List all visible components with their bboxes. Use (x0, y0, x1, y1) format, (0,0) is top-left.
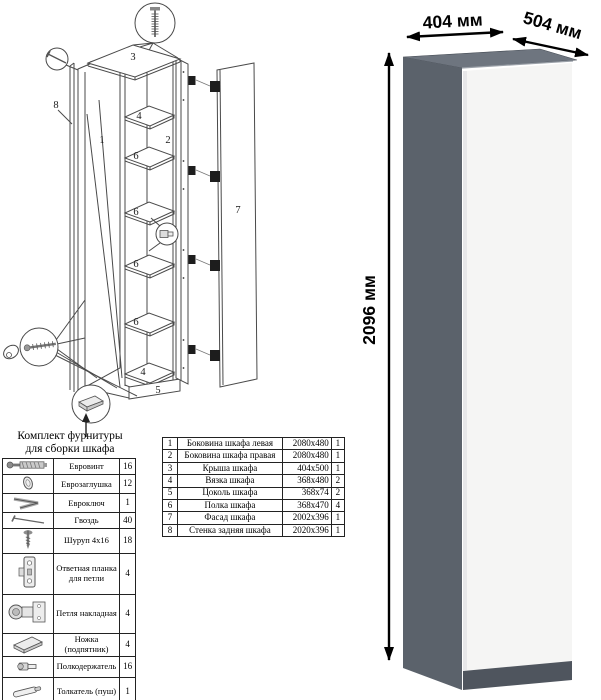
parts-row: 8 Стенка задняя шкафа 2020x396 1 (163, 524, 345, 536)
part-num: 4 (163, 475, 178, 487)
hardware-kit-title-line2: для сборки шкафа (0, 443, 140, 456)
hardware-qty: 16 (120, 459, 136, 475)
hardware-icon-cell (3, 459, 54, 475)
hardware-icon-cell (3, 633, 54, 656)
cabinet-side-face (403, 57, 462, 690)
hardware-row: Евровинт 16 (3, 459, 136, 475)
part-size: 2080x480 (282, 438, 331, 450)
euro-screw-icon (6, 459, 50, 471)
hardware-row: Толкатель (пуш) 1 (3, 677, 136, 700)
hardware-row: Шуруп 4x16 18 (3, 529, 136, 553)
part-num: 8 (163, 524, 178, 536)
part-name: Фасад шкафа (178, 512, 283, 524)
label-right-side: 2 (165, 135, 170, 146)
part-qty: 2 (331, 487, 344, 499)
shelf-pin-callout (156, 223, 178, 245)
cabinet-door-face (463, 63, 572, 671)
label-top-panel: 3 (130, 52, 135, 63)
hardware-name: Ножка (подпятник) (53, 633, 120, 656)
label-plinth: 5 (155, 385, 160, 396)
hardware-icon-cell (3, 553, 54, 594)
part-name: Боковина шкафа левая (178, 438, 283, 450)
hardware-qty: 4 (120, 553, 136, 594)
hardware-icon-cell (3, 677, 54, 700)
part-name: Стенка задняя шкафа (178, 524, 283, 536)
foot-icon (10, 634, 46, 654)
cabinet-render (403, 49, 577, 690)
part-size: 368x470 (282, 499, 331, 511)
width-label: 404 мм (422, 9, 483, 32)
part-num: 6 (163, 499, 178, 511)
width-arrow (407, 32, 503, 37)
hardware-row: Еврозаглушка 12 (3, 475, 136, 494)
label-shelf-c: 6 (133, 259, 138, 270)
hardware-name: Гвоздь (53, 513, 120, 529)
hardware-qty: 4 (120, 633, 136, 656)
hardware-qty: 40 (120, 513, 136, 529)
parts-row: 2 Боковина шкафа правая 2080x480 1 (163, 450, 345, 462)
label-shelf-a: 6 (133, 151, 138, 162)
shelf-pin-icon (15, 659, 41, 673)
nail-icon (8, 514, 48, 526)
label-bottom-brace: 4 (140, 367, 146, 378)
euro-cap-icon (20, 475, 36, 491)
label-top-brace: 4 (136, 111, 142, 122)
depth-label: 504 мм (521, 7, 584, 43)
part-name: Вязка шкафа (178, 475, 283, 487)
part-num: 3 (163, 462, 178, 474)
part-qty: 1 (331, 438, 344, 450)
parts-row: 7 Фасад шкафа 2002x396 1 (163, 512, 345, 524)
parts-row: 3 Крыша шкафа 404x500 1 (163, 462, 345, 474)
part-size: 368x74 (282, 487, 331, 499)
label-shelf-b: 6 (133, 207, 138, 218)
hardware-qty: 16 (120, 656, 136, 677)
part-num: 1 (163, 438, 178, 450)
hardware-icon-cell (3, 494, 54, 513)
part-num: 5 (163, 487, 178, 499)
hardware-qty: 4 (120, 594, 136, 633)
part-qty: 4 (331, 499, 344, 511)
nail-callout (46, 48, 68, 70)
push-rod-icon (8, 680, 48, 700)
parts-row: 4 Вязка шкафа 368x480 2 (163, 475, 345, 487)
parts-row: 5 Цоколь шкафа 368x74 2 (163, 487, 345, 499)
hardware-icon-cell (3, 656, 54, 677)
hardware-name: Петля накладная (53, 594, 120, 633)
part-qty: 2 (331, 475, 344, 487)
exploded-diagram: 1 2 3 4 6 6 6 6 4 5 7 8 (1, 3, 257, 437)
euro-key-icon (10, 494, 46, 510)
hardware-row: Петля накладная 4 (3, 594, 136, 633)
hardware-row: Ножка (подпятник) 4 (3, 633, 136, 656)
parts-table: 1 Боковина шкафа левая 2080x480 1 2 Боко… (162, 437, 345, 537)
part-size: 2020x396 (282, 524, 331, 536)
hinge-icon (6, 598, 50, 626)
part-name: Боковина шкафа правая (178, 450, 283, 462)
hardware-kit-table: Евровинт 16 Еврозаглушка 12 Евроключ 1 (2, 458, 136, 700)
part-name: Полка шкафа (178, 499, 283, 511)
part-num: 7 (163, 512, 178, 524)
label-back-panel: 8 (53, 100, 58, 111)
strike-plate-icon (13, 555, 43, 589)
label-door: 7 (235, 205, 240, 216)
back-panel-part (58, 63, 74, 392)
hardware-name: Еврозаглушка (53, 475, 120, 494)
hardware-kit-title-line1: Комплект фурнитуры (0, 430, 140, 443)
parts-row: 6 Полка шкафа 368x470 4 (163, 499, 345, 511)
part-qty: 1 (331, 524, 344, 536)
hardware-name: Полкодержатель (53, 656, 120, 677)
part-qty: 1 (331, 462, 344, 474)
parts-row: 1 Боковина шкафа левая 2080x480 1 (163, 438, 345, 450)
hardware-qty: 12 (120, 475, 136, 494)
shelves (125, 106, 174, 386)
hardware-icon-cell (3, 475, 54, 494)
hardware-name: Толкатель (пуш) (53, 677, 120, 700)
part-size: 404x500 (282, 462, 331, 474)
assembly-sheet: 1 2 3 4 6 6 6 6 4 5 7 8 404 мм 504 мм 20… (0, 0, 601, 700)
hardware-row: Полкодержатель 16 (3, 656, 136, 677)
hardware-row: Гвоздь 40 (3, 513, 136, 529)
door-part (217, 63, 257, 387)
hardware-icon-cell (3, 513, 54, 529)
euro-screw-callout (135, 3, 175, 43)
hardware-name: Евровинт (53, 459, 120, 475)
label-shelf-d: 6 (133, 317, 138, 328)
wood-screw-icon (21, 529, 35, 550)
hardware-qty: 1 (120, 677, 136, 700)
part-qty: 1 (331, 512, 344, 524)
confirmat-key-callout (1, 328, 58, 366)
hardware-qty: 18 (120, 529, 136, 553)
part-num: 2 (163, 450, 178, 462)
hardware-name: Евроключ (53, 494, 120, 513)
height-label: 2096 мм (359, 275, 379, 345)
hardware-qty: 1 (120, 494, 136, 513)
hardware-icon-cell (3, 529, 54, 553)
part-qty: 1 (331, 450, 344, 462)
right-side-part (176, 58, 188, 384)
part-size: 368x480 (282, 475, 331, 487)
label-left-side: 1 (99, 135, 104, 146)
part-name: Крыша шкафа (178, 462, 283, 474)
part-size: 2080x480 (282, 450, 331, 462)
left-side-part (78, 51, 122, 391)
hardware-row: Евроключ 1 (3, 494, 136, 513)
part-name: Цоколь шкафа (178, 487, 283, 499)
hardware-row: Ответная планка для петли 4 (3, 553, 136, 594)
hardware-kit-title: Комплект фурнитуры для сборки шкафа (0, 430, 140, 456)
hardware-icon-cell (3, 594, 54, 633)
hardware-name: Шуруп 4x16 (53, 529, 120, 553)
hinges (189, 76, 221, 361)
hardware-name: Ответная планка для петли (53, 553, 120, 594)
part-size: 2002x396 (282, 512, 331, 524)
